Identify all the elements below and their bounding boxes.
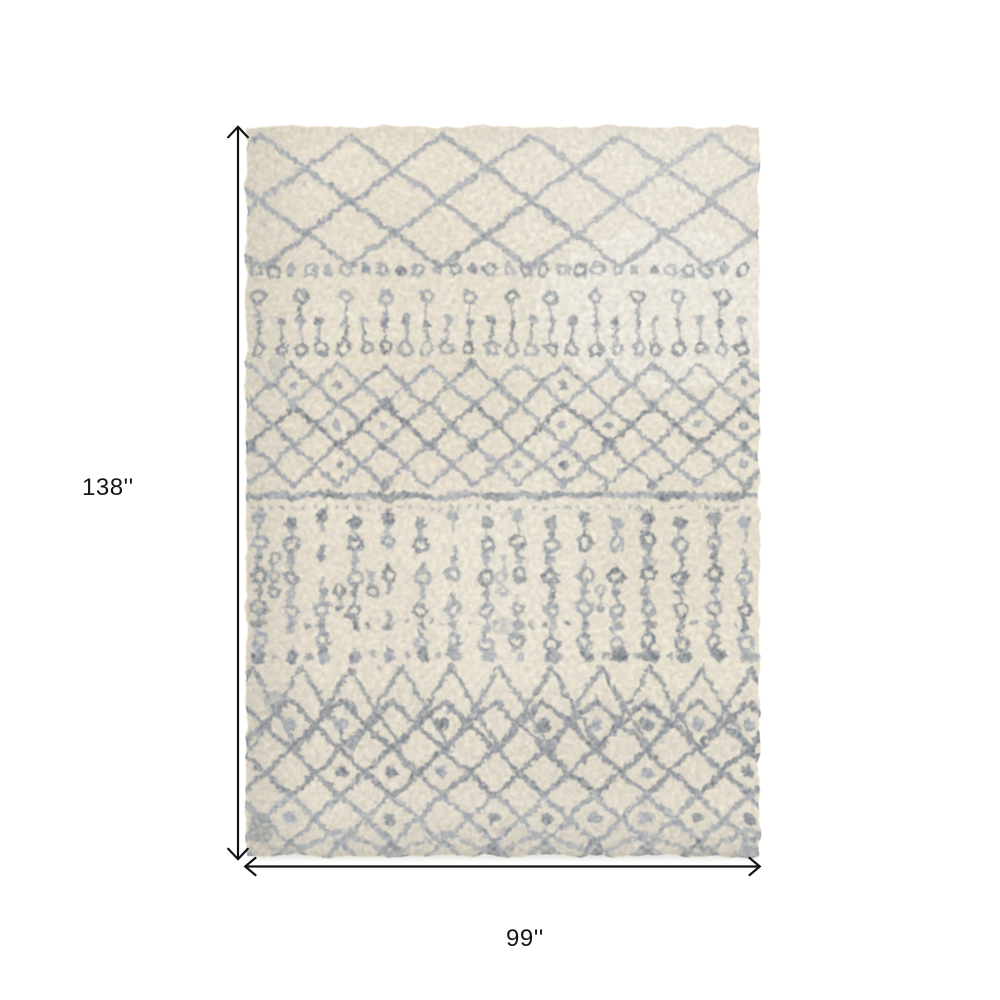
svg-text:99'': 99'' [506,925,544,952]
svg-text:138'': 138'' [82,474,134,501]
